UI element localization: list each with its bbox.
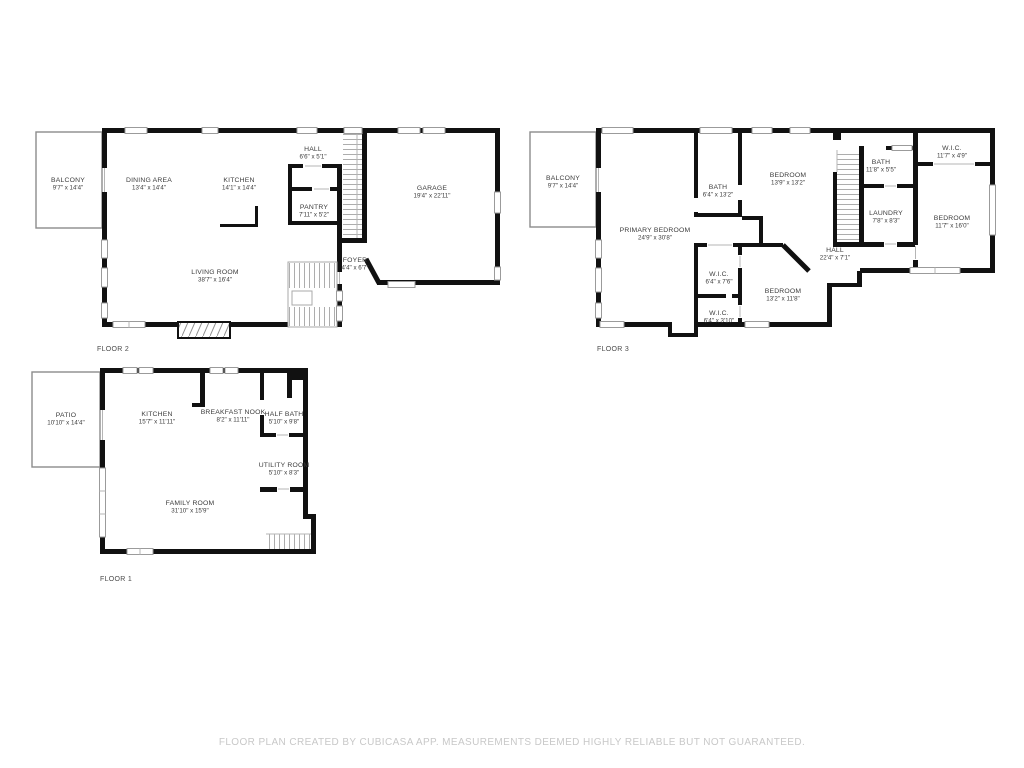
room-dims: 6'4" x 13'2" bbox=[703, 192, 734, 199]
floor-2-labels: BALCONY 9'7" x 14'4" DINING AREA 13'4" x… bbox=[51, 146, 450, 353]
floor-3-label: FLOOR 3 bbox=[597, 346, 629, 353]
room-dims: 14'1" x 14'4" bbox=[222, 185, 256, 192]
room-dims: 13'2" x 11'8" bbox=[766, 296, 799, 303]
room-label: FOYER bbox=[343, 257, 367, 264]
room-dims: 22'4" x 7'1" bbox=[820, 255, 851, 262]
kitchen-counter bbox=[220, 224, 258, 227]
room-label: BATH bbox=[872, 159, 890, 166]
room-dims: 5'10" x 8'3" bbox=[269, 470, 300, 477]
room-dims: 13'9" x 13'2" bbox=[771, 180, 805, 187]
floor-plan-page: BALCONY 9'7" x 14'4" DINING AREA 13'4" x… bbox=[0, 0, 1024, 768]
floor-1-walls bbox=[100, 368, 316, 554]
floor-2-stairs bbox=[288, 133, 362, 327]
room-label: UTILITY ROOM bbox=[259, 462, 310, 469]
bay-window bbox=[178, 322, 230, 338]
room-dims: 6'4" x 7'6" bbox=[705, 279, 732, 286]
room-dims: 15'7" x 11'11" bbox=[139, 419, 175, 426]
staircase-down bbox=[837, 152, 859, 242]
room-dims: 7'11" x 5'2" bbox=[299, 212, 329, 219]
room-label: BALCONY bbox=[51, 177, 85, 184]
room-label: HALL bbox=[826, 247, 844, 254]
floor-2-plan: BALCONY 9'7" x 14'4" DINING AREA 13'4" x… bbox=[36, 128, 501, 354]
room-dims: 5'10" x 9'8" bbox=[269, 419, 300, 426]
room-dims: 11'7" x 4'9" bbox=[937, 153, 967, 160]
room-label: HALL bbox=[304, 146, 322, 153]
room-label: PATIO bbox=[56, 412, 76, 419]
floor-plan-canvas: BALCONY 9'7" x 14'4" DINING AREA 13'4" x… bbox=[0, 0, 1024, 768]
floor-2-label: FLOOR 2 bbox=[97, 346, 129, 353]
room-label: LAUNDRY bbox=[869, 210, 903, 217]
room-dims: 8'2" x 11'11" bbox=[216, 417, 249, 424]
room-dims: 19'4" x 22'11" bbox=[414, 193, 451, 200]
room-label: W.I.C. bbox=[942, 145, 962, 152]
room-dims: 24'9" x 30'8" bbox=[638, 235, 672, 242]
room-label: PRIMARY BEDROOM bbox=[620, 227, 691, 234]
room-label: HALF BATH bbox=[265, 411, 304, 418]
room-label: LIVING ROOM bbox=[191, 269, 239, 276]
floor-3-plan: BALCONY 9'7" x 14'4" PRIMARY BEDROOM 24'… bbox=[530, 128, 996, 354]
staircase-up bbox=[343, 133, 362, 238]
hall-diagonal-wall bbox=[783, 245, 809, 271]
room-dims: 13'4" x 14'4" bbox=[132, 185, 166, 192]
staircase-up bbox=[266, 534, 311, 549]
floor-1-label: FLOOR 1 bbox=[100, 576, 132, 583]
room-label: BALCONY bbox=[546, 175, 580, 182]
room-label: KITCHEN bbox=[223, 177, 254, 184]
room-label: BREAKFAST NOOK bbox=[201, 409, 266, 416]
floor-1-stairs bbox=[266, 534, 311, 549]
room-dims: 31'10" x 15'9" bbox=[171, 508, 208, 515]
room-label: BATH bbox=[709, 184, 727, 191]
room-dims: 11'7" x 16'0" bbox=[935, 223, 968, 230]
room-label: W.I.C. bbox=[709, 310, 729, 317]
room-label: PANTRY bbox=[300, 204, 328, 211]
room-label: DINING AREA bbox=[126, 177, 172, 184]
room-dims: 38'7" x 16'4" bbox=[198, 277, 232, 284]
room-dims: 9'7" x 14'4" bbox=[548, 183, 579, 190]
floor-1-plan: PATIO 10'10" x 14'4" KITCHEN 15'7" x 11'… bbox=[32, 368, 316, 584]
room-label: BEDROOM bbox=[934, 215, 971, 222]
room-dims: 6'6" x 5'1" bbox=[299, 154, 326, 161]
room-dims: 9'7" x 14'4" bbox=[53, 185, 84, 192]
room-label: GARAGE bbox=[417, 185, 448, 192]
room-label: FAMILY ROOM bbox=[166, 500, 215, 507]
room-dims: 6'4" x 3'10" bbox=[704, 318, 735, 325]
room-dims: 7'8" x 8'3" bbox=[872, 218, 899, 225]
footer-credit: FLOOR PLAN CREATED BY CUBICASA APP. MEAS… bbox=[0, 737, 1024, 748]
room-label: BEDROOM bbox=[765, 288, 802, 295]
room-label: KITCHEN bbox=[141, 411, 172, 418]
room-label: W.I.C. bbox=[709, 271, 729, 278]
kitchen-counter bbox=[255, 206, 258, 227]
room-dims: 10'10" x 14'4" bbox=[47, 420, 84, 427]
floor-3-stairs bbox=[837, 150, 859, 242]
room-dims: 4'4" x 6'7" bbox=[341, 265, 368, 272]
room-dims: 11'8" x 5'5" bbox=[866, 167, 896, 174]
room-label: BEDROOM bbox=[770, 172, 807, 179]
